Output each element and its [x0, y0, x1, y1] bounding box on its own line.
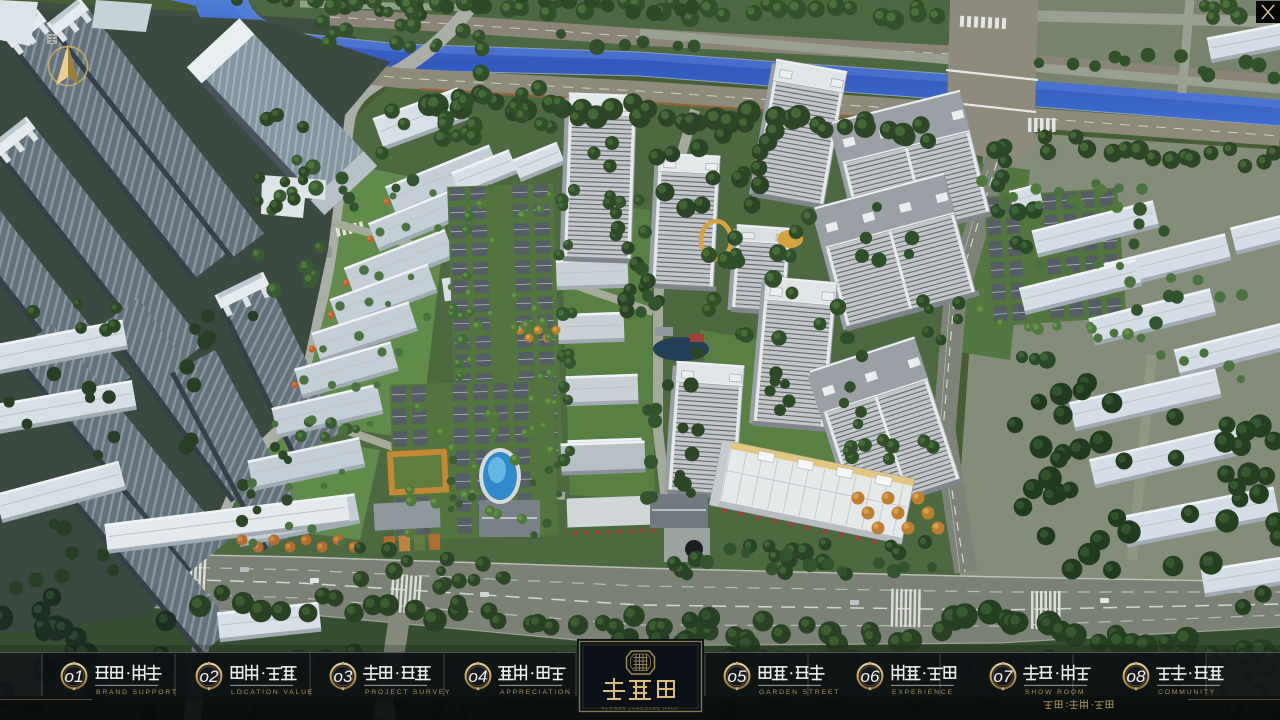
svg-text:LOCATION VALUE: LOCATION VALUE: [231, 689, 314, 696]
svg-text:SHOW ROOM: SHOW ROOM: [1025, 689, 1085, 696]
svg-text:COMMUNITY: COMMUNITY: [1158, 689, 1216, 696]
svg-text:o3: o3: [334, 667, 353, 686]
svg-text:o5: o5: [728, 667, 747, 686]
svg-text:BRAND SUPPORT: BRAND SUPPORT: [96, 689, 178, 696]
svg-text:PROJECT SURVEY: PROJECT SURVEY: [365, 689, 452, 696]
svg-text:o1: o1: [65, 667, 84, 686]
svg-text:o4: o4: [469, 667, 488, 686]
svg-text:o8: o8: [1127, 667, 1146, 686]
svg-text:o7: o7: [994, 667, 1013, 686]
svg-text:o6: o6: [861, 667, 880, 686]
svg-text:EXPERIENCE: EXPERIENCE: [892, 689, 954, 696]
svg-text:GARDEN STREET: GARDEN STREET: [759, 689, 840, 696]
svg-text:FLOWER LANGUAGE HALL: FLOWER LANGUAGE HALL: [602, 706, 678, 711]
svg-text:APPRECIATION: APPRECIATION: [500, 689, 572, 696]
svg-text:o2: o2: [200, 667, 219, 686]
